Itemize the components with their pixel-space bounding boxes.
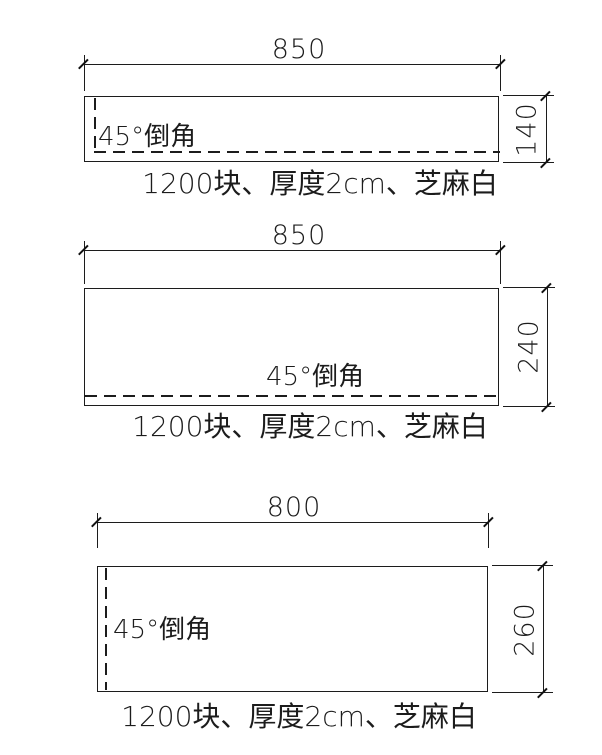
- chamfer-dashed-line: [85, 395, 498, 397]
- dimension-line: [547, 288, 548, 407]
- technical-drawing: 850 45°倒角 140 1200块、厚度2cm、芝麻白 850 45°倒角: [0, 0, 602, 755]
- height-dimension-label: 140: [514, 80, 541, 180]
- width-dimension-label: 850: [249, 222, 349, 249]
- chamfer-dashed-line: [94, 98, 96, 152]
- height-dimension-label: 260: [512, 580, 539, 680]
- panel-caption: 1200块、厚度2cm、芝麻白: [110, 412, 510, 442]
- height-dimension-label: 240: [516, 297, 543, 397]
- panel-caption: 1200块、厚度2cm、芝麻白: [99, 702, 499, 732]
- panel-caption: 1200块、厚度2cm、芝麻白: [120, 169, 520, 199]
- width-dimension-label: 850: [249, 36, 349, 63]
- dimension-line: [543, 566, 544, 693]
- chamfer-label: 45°倒角: [266, 364, 364, 390]
- chamfer-label: 45°倒角: [98, 124, 196, 150]
- chamfer-dashed-line: [105, 568, 107, 690]
- width-dimension-label: 800: [244, 494, 344, 521]
- chamfer-label: 45°倒角: [113, 617, 211, 643]
- dimension-line: [546, 96, 547, 163]
